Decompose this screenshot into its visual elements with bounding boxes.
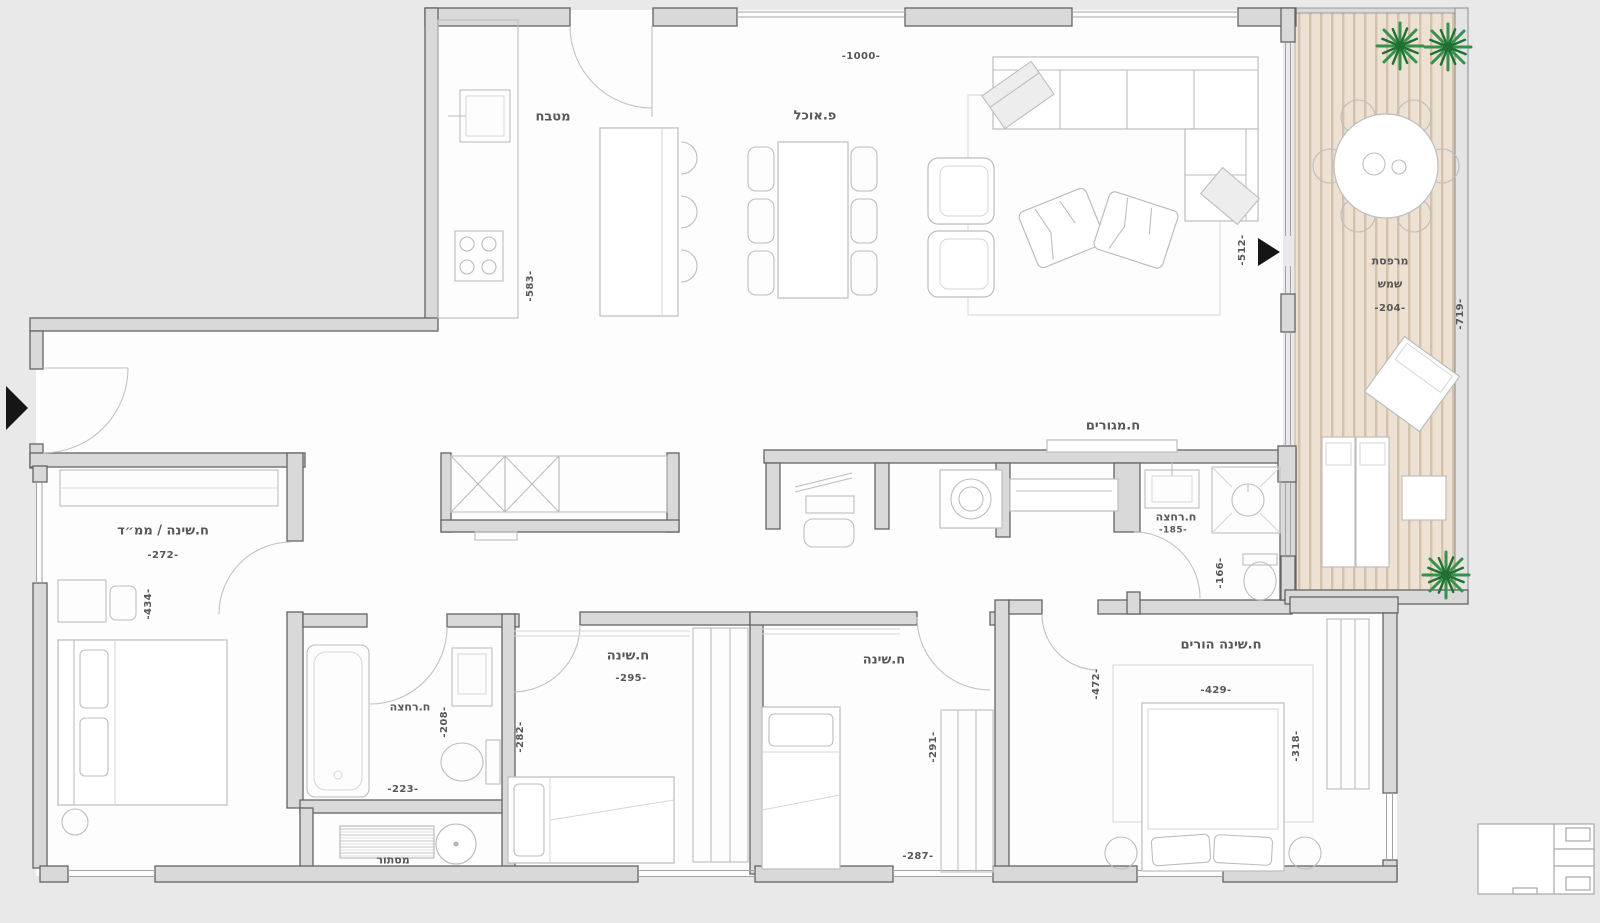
kitchen-height-dim: -583- <box>526 270 536 301</box>
neighbor-structure <box>1478 824 1594 894</box>
living-label: ח.מגורים <box>1086 420 1140 433</box>
bathroom-right-height-dim: -166- <box>1216 557 1226 588</box>
bedroom-2-height-dim: -282- <box>516 721 526 752</box>
bedroom-3-label: ח.שינה <box>863 654 905 667</box>
parents-height-dim-left: -472- <box>1092 668 1102 699</box>
bathroom-right-label: ח.רחצה <box>1156 512 1197 523</box>
bathroom-left-depth-dim: -208- <box>440 706 450 737</box>
terrace-width-dim: -204- <box>1374 304 1405 314</box>
floor-plan-page: מטבח פ.אוכל ח.מגורים מרפסת שמש -204- -71… <box>0 0 1600 923</box>
laundry-screen-label: מסתור <box>376 855 409 866</box>
floor-plan-drawing <box>0 0 1600 923</box>
hall-counter <box>1010 479 1118 511</box>
top-width-dim: -1000- <box>842 52 881 62</box>
terrace-height-dim: -719- <box>1456 298 1466 329</box>
dining-label: פ.אוכל <box>794 110 837 123</box>
terrace-door-dim: -512- <box>1238 234 1248 265</box>
kitchen-label: מטבח <box>535 111 570 124</box>
bedroom-mamad-height-dim: -434- <box>144 588 154 619</box>
bedroom-3-width-dim: -287- <box>902 852 933 862</box>
parents-width-dim: -429- <box>1200 686 1231 696</box>
terrace-label-line1: מרפסת <box>1372 256 1409 267</box>
bedroom-mamad-width-dim: -272- <box>147 551 178 561</box>
bedroom-2-width-dim: -295- <box>615 674 646 684</box>
bathroom-right-width-dim: -185- <box>1159 527 1187 536</box>
bathroom-left-label: ח.רחצה <box>390 702 431 713</box>
bedroom-3-height-dim: -291- <box>929 731 939 762</box>
bedroom-2-label: ח.שינה <box>607 650 649 663</box>
bathroom-left-width-dim: -223- <box>387 785 418 795</box>
washing-machine <box>940 470 1002 528</box>
bedroom-mamad-label: ח.שינה / ממ״ד <box>117 525 209 538</box>
entrance-arrow-icon <box>6 386 28 430</box>
parents-height-dim-right: -318- <box>1292 730 1302 761</box>
terrace-label-line2: שמש <box>1378 279 1403 290</box>
parents-bedroom-label: ח.שינה הורים <box>1180 639 1261 652</box>
